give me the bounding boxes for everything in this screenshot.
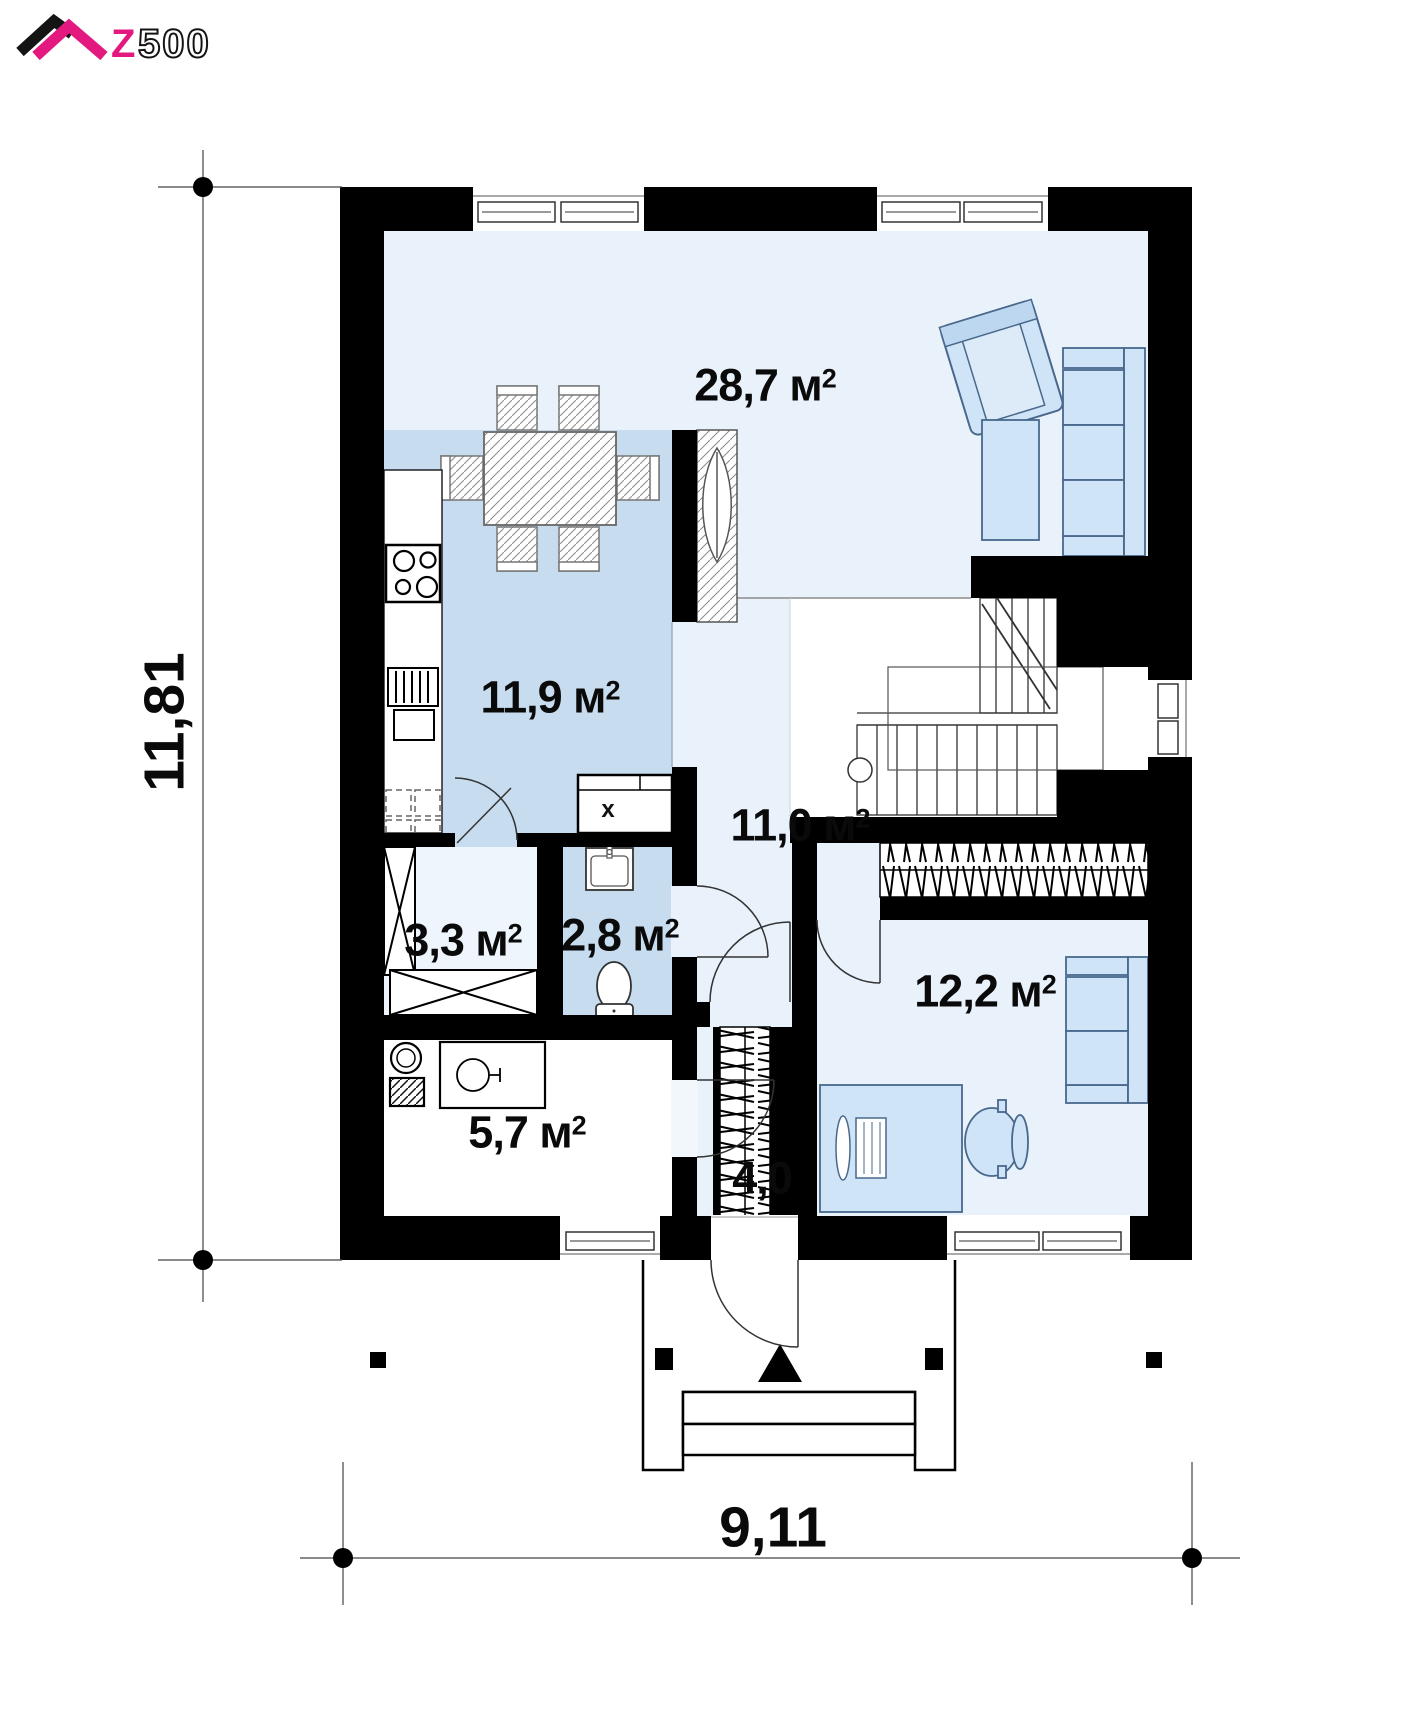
dimension-node [193,177,213,197]
logo-numbers: 500 [138,22,211,66]
kitchen-counter [384,470,442,846]
dimension-width: 9,11 [719,1500,827,1557]
terrace-post [1146,1352,1162,1368]
dimension-node [193,1250,213,1270]
sink-marker: x [601,796,614,824]
terrace-post [370,1352,386,1368]
radiator-icon [388,668,438,740]
z500-logo: Z 500 [14,8,234,73]
desk-icon [820,1085,962,1212]
cabinet-icon [697,430,737,622]
small-sofa-icon [1066,957,1148,1103]
porch [370,1260,1162,1470]
coffee-table-icon [982,420,1039,540]
kitchen-sink-unit [578,775,672,833]
toilet-icon [596,962,633,1018]
stove-icon [386,545,440,602]
dimension-height: 11,81 [137,652,194,792]
room-label-utility: 5,7 м2 [468,1110,585,1155]
entrance-opening [711,1215,798,1260]
room-label-pantry: 3,3 м2 [404,918,521,963]
room-label-kitchen: 11,9 м2 [481,675,620,720]
room-label-hall: 11,0 м2 [731,803,870,848]
sofa-icon [1063,348,1145,556]
floor-plan-page: Z 500 28,7 м2 11,9 м2 11,0 м2 3,3 м2 2,8… [0,0,1403,1730]
floor-plan-drawing [0,0,1403,1730]
room-label-living-dining: 28,7 м2 [694,363,835,408]
dimension-node [1182,1548,1202,1568]
washbasin-icon [586,846,633,890]
room-label-vestibule: 4,0 [732,1156,792,1201]
room-label-bedroom-office: 12,2 м2 [914,969,1055,1014]
room-label-bathroom: 2,8 м2 [561,913,678,958]
dimension-node [333,1548,353,1568]
logo-z: Z [111,22,135,66]
